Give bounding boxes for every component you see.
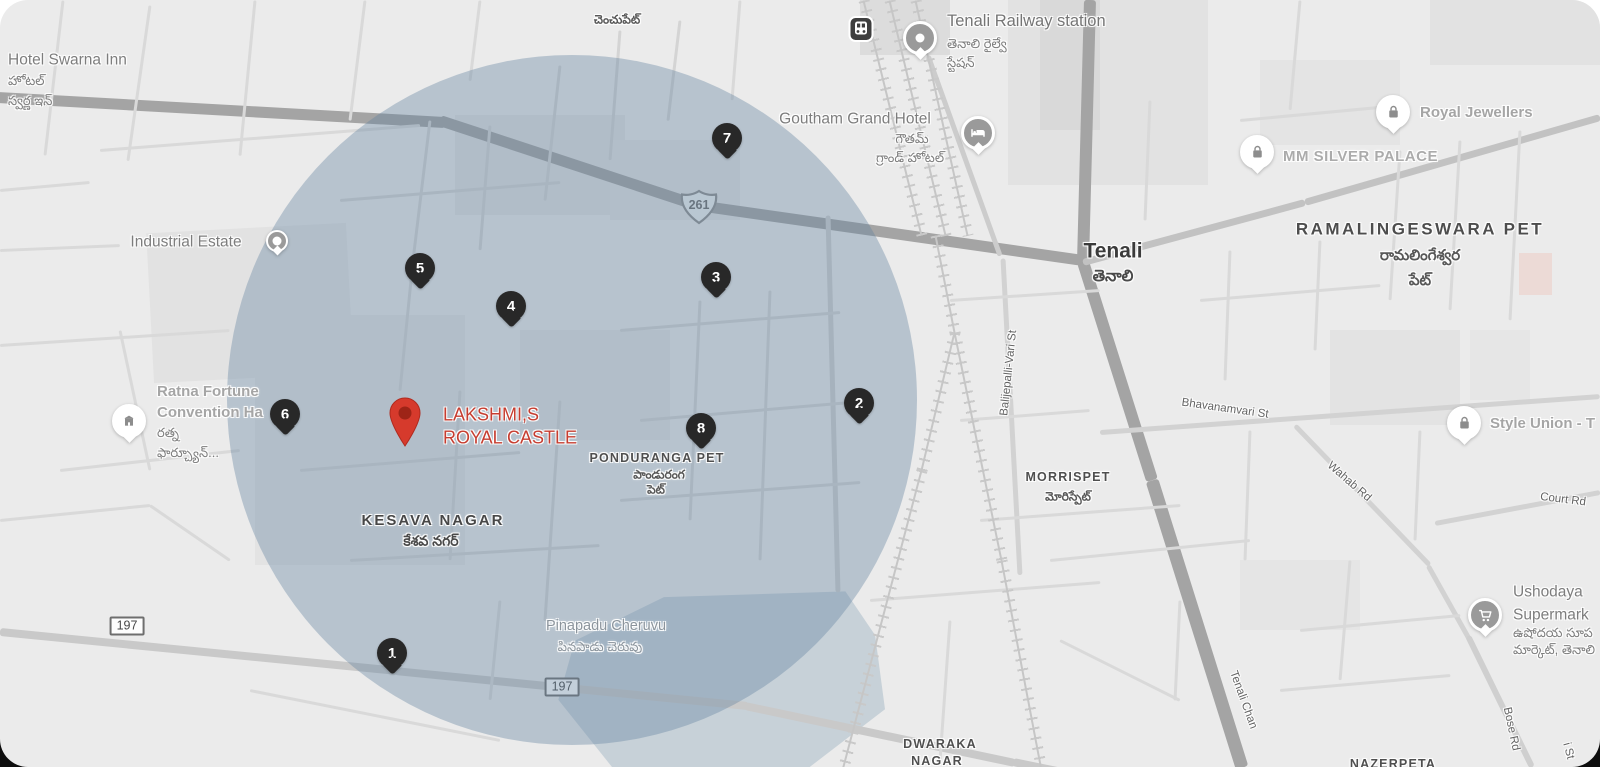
ponduranga-pet-te-2: పెట్ [647,483,665,496]
mm-silver-palace-pin[interactable] [1240,135,1274,172]
chenchupet-te: చెంచుపేట్ [594,13,640,26]
railway-track [950,331,1008,561]
road [239,0,257,155]
kesava-nagar-te: కేశవ నగర్ [403,533,458,548]
road [1314,240,1322,350]
ratna-fortune-pin[interactable] [112,404,146,441]
goutham-grand-hotel-pin[interactable] [961,116,995,153]
numbered-marker-8[interactable]: 8 [686,413,716,447]
road [1280,674,1450,692]
building-block [1470,330,1530,400]
morrispet: MORRISPET [1025,471,1110,485]
road [0,181,90,192]
hotel-swarna-inn-te-2: స్వర్ణ ఇన్ [8,94,52,108]
pinapadu-cheruvu: Pinapadu Cheruvu [546,619,666,635]
tenali-railway-station-pin[interactable] [903,21,937,58]
road [731,0,742,100]
property-name-line1: LAKSHMI,S [443,404,577,427]
road [1426,564,1472,641]
tenali-railway-station: Tenali Railway station [947,12,1106,30]
ratna-fortune-te-2: ఫార్చ్యూన్... [157,446,219,460]
red-pin-icon [388,397,422,447]
goutham-grand-hotel: Goutham Grand Hotel [779,110,931,127]
road [149,504,231,561]
industrial-estate: Industrial Estate [130,233,241,250]
route-shield-197: 197 [110,617,145,636]
ushodaya-1: Ushodaya [1513,583,1583,600]
road [1146,478,1248,767]
property-label: LAKSHMI,S ROYAL CASTLE [443,404,577,449]
kesava-nagar: KESAVA NAGAR [362,513,505,530]
map-card: 261197197Hotel Swarna Innహోటల్స్వర్ణ ఇన్… [0,0,1600,767]
road [1077,260,1157,482]
road [0,504,150,522]
building-block [1240,560,1360,630]
tenali-town-te: తెనాలి [1093,268,1134,286]
ushodaya-2: Supermark [1513,606,1589,623]
road [44,0,65,155]
road [0,244,120,252]
pinapadu-cheruvu-te: పినపాడు చెరువు [558,640,643,654]
goutham-grand-hotel-te-1: గౌతమ్ [895,132,928,146]
building-block [1430,0,1600,65]
road [119,330,152,471]
numbered-marker-1[interactable]: 1 [377,638,407,672]
tenali-railway-station-te-1: తెనాలి రైల్వే [947,37,1007,51]
railway-track [931,234,961,333]
ramalingeswara-pet-te-1: రామలింగేశ్వర [1380,248,1460,265]
road [1224,250,1232,380]
road [950,289,1100,302]
railway-track [997,559,1048,767]
numbered-marker-4[interactable]: 4 [496,291,526,325]
numbered-marker-6[interactable]: 6 [270,399,300,433]
tenali-town: Tenali [1083,239,1142,262]
numbered-marker-2[interactable]: 2 [844,388,874,422]
map-canvas[interactable]: 261197197Hotel Swarna Innహోటల్స్వర్ణ ఇన్… [0,0,1600,767]
industrial-estate-pin[interactable] [266,230,288,254]
ratna-fortune-2: Convention Ha [157,405,263,422]
road [980,504,1180,522]
road [960,409,1090,422]
numbered-marker-7[interactable]: 7 [712,123,742,157]
ushodaya-te-1: ఉషోదయ సూప [1513,626,1593,640]
numbered-marker-5[interactable]: 5 [405,253,435,287]
royal-jewellers: Royal Jewellers [1420,105,1533,122]
i-st: i St [1560,741,1577,760]
hotel-swarna-inn-te-1: హోటల్ [8,74,44,88]
road [1050,539,1250,562]
road [1174,600,1182,700]
road [1059,639,1180,702]
royal-jewellers-pin[interactable] [1376,95,1410,132]
morrispet-te: మోరిస్పేట్ [1045,490,1091,503]
hotel-swarna-inn: Hotel Swarna Inn [8,51,127,68]
dwaraka-nagar-1: DWARAKA [903,738,977,752]
ramalingeswara-pet-te-2: పేట్ [1409,273,1431,290]
ratna-fortune-te-1: రత్న [157,426,179,440]
bhavanamvari-st: Bhavanamvari St [1181,397,1269,422]
ponduranga-pet: PONDURANGA PET [589,452,724,466]
road [870,581,1100,602]
road [349,0,367,120]
ramalingeswara-pet: RAMALINGESWARA PET [1296,221,1544,240]
ushodaya-supermarket-pin[interactable] [1468,598,1502,635]
property-pin[interactable] [388,397,422,452]
tenali-railway-station-te-2: స్టేషన్ [947,56,975,70]
nazerpeta: NAZERPETA [1350,758,1436,767]
wahab-rd: Wahab Rd [1325,460,1374,505]
property-name-line2: ROYAL CASTLE [443,426,577,449]
ushodaya-te-2: మార్కెట్, తెనాలి [1513,643,1595,657]
goutham-grand-hotel-te-2: గ్రాండ్ హోటల్ [876,151,944,165]
ponduranga-pet-te-1: పాండురంగ [633,468,685,481]
railway-station-icon [848,16,874,49]
building-block [1519,253,1552,295]
mm-silver-palace: MM SILVER PALACE [1283,149,1438,166]
balijepalli-vari-st: Balijepalli-Vari St [998,330,1020,417]
road [1414,430,1422,540]
style-union: Style Union - T [1490,416,1595,433]
numbered-marker-3[interactable]: 3 [701,262,731,296]
road [127,5,152,160]
ratna-fortune-1: Ratna Fortune [157,384,259,401]
dwaraka-nagar-2: NAGAR [911,755,963,767]
bose-rd: Bose Rd [1500,706,1522,752]
style-union-pin[interactable] [1447,406,1481,443]
